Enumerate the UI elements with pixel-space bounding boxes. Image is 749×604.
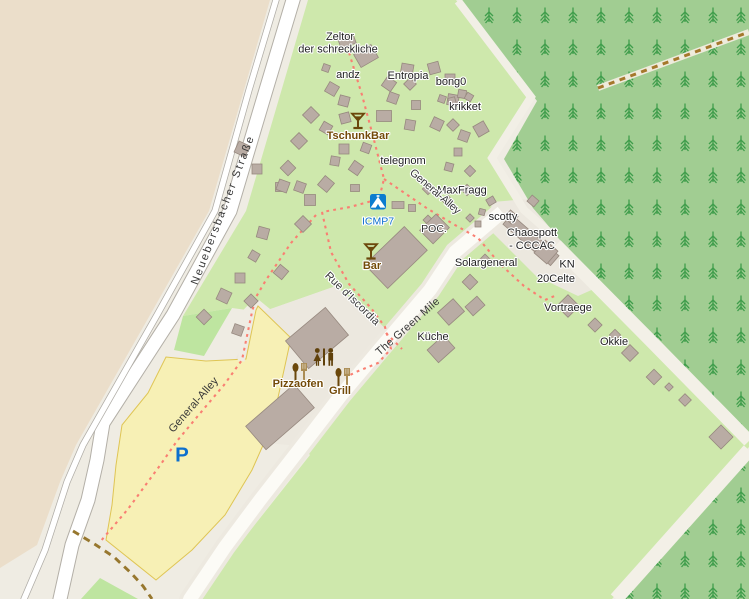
svg-text:Okkie: Okkie <box>600 336 628 348</box>
svg-text:andz: andz <box>336 69 360 81</box>
svg-text:TschunkBar: TschunkBar <box>327 130 390 142</box>
svg-text:Entropia: Entropia <box>388 70 430 82</box>
svg-text:Solargeneral: Solargeneral <box>455 257 517 269</box>
svg-text:Küche: Küche <box>417 331 448 343</box>
svg-text:Chaospott: Chaospott <box>507 227 557 239</box>
svg-text:POC.: POC. <box>421 223 447 235</box>
svg-text:- CCCAC: - CCCAC <box>509 240 555 252</box>
svg-text:bong0: bong0 <box>436 76 467 88</box>
svg-text:krikket: krikket <box>449 101 481 113</box>
svg-text:der schreckliche: der schreckliche <box>298 44 377 56</box>
svg-text:KN: KN <box>559 259 574 271</box>
svg-text:Zeltor: Zeltor <box>326 31 354 43</box>
svg-text:telegnom: telegnom <box>380 155 425 167</box>
svg-text:P: P <box>175 444 189 467</box>
svg-text:Pizzaofen: Pizzaofen <box>273 378 324 390</box>
svg-text:20Celte: 20Celte <box>537 273 575 285</box>
svg-text:Bar: Bar <box>363 260 382 272</box>
svg-text:ICMP7: ICMP7 <box>362 216 394 228</box>
svg-text:Grill: Grill <box>329 385 351 397</box>
svg-text:Vortraege: Vortraege <box>544 302 592 314</box>
svg-text:scotty: scotty <box>489 211 518 223</box>
